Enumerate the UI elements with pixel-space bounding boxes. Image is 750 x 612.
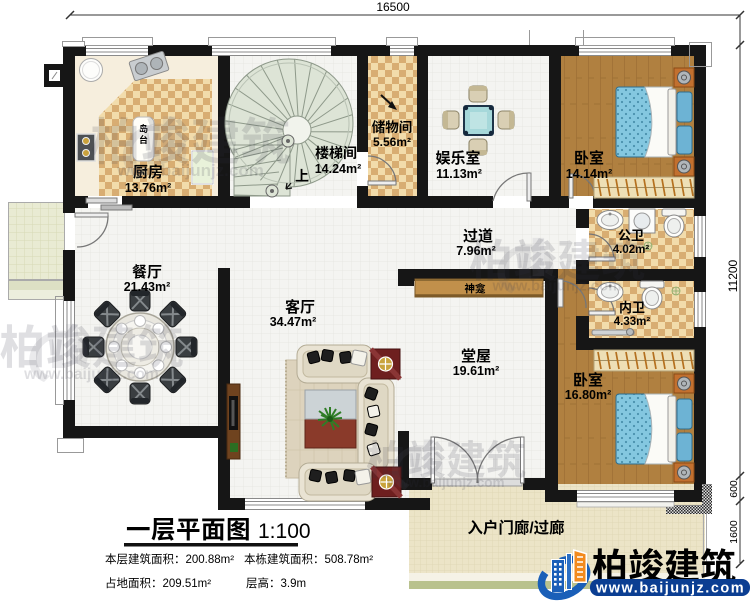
svg-text:娱乐室: 娱乐室	[435, 147, 480, 168]
svg-text:600: 600	[728, 480, 740, 498]
svg-text:14.24m²: 14.24m²	[315, 162, 362, 176]
svg-text:堂屋: 堂屋	[461, 345, 491, 366]
svg-text:1:100: 1:100	[258, 520, 311, 543]
svg-text:16500: 16500	[376, 0, 410, 14]
svg-text:19.61m²: 19.61m²	[453, 364, 500, 378]
svg-text:21.43m²: 21.43m²	[124, 280, 171, 294]
svg-text:www.baijunjz.com: www.baijunjz.com	[491, 277, 621, 294]
svg-text:5.56m²: 5.56m²	[373, 135, 411, 149]
svg-text:上: 上	[295, 166, 309, 186]
svg-text:本栋建筑面积：508.78m²: 本栋建筑面积：508.78m²	[244, 551, 373, 567]
svg-text:www.baijunjz.com: www.baijunjz.com	[116, 161, 264, 180]
svg-text:11200: 11200	[726, 259, 740, 292]
svg-text:4.33m²: 4.33m²	[614, 316, 651, 328]
svg-text:入户门廊/过廊: 入户门廊/过廊	[467, 516, 564, 538]
svg-text:占地面积：209.51m²: 占地面积：209.51m²	[105, 575, 211, 591]
svg-text:11.13m²: 11.13m²	[436, 167, 482, 181]
svg-text:楼梯间: 楼梯间	[315, 143, 357, 163]
svg-text:www.baijunjz.com: www.baijunjz.com	[386, 475, 504, 490]
svg-text:卧室: 卧室	[573, 369, 603, 390]
svg-text:14.14m²: 14.14m²	[566, 167, 613, 181]
svg-text:内卫: 内卫	[619, 297, 645, 316]
svg-text:16.80m²: 16.80m²	[565, 388, 612, 402]
svg-text:一层平面图: 一层平面图	[126, 511, 251, 546]
svg-text:卧室: 卧室	[574, 147, 604, 168]
svg-text:本层建筑面积：200.88m²: 本层建筑面积：200.88m²	[105, 551, 234, 567]
svg-text:餐厅: 餐厅	[132, 261, 162, 282]
svg-text:客厅: 客厅	[285, 296, 315, 317]
svg-text:www.baijunjz.com: www.baijunjz.com	[595, 581, 745, 597]
svg-text:层高：3.9m: 层高：3.9m	[246, 575, 306, 591]
svg-text:13.76m²: 13.76m²	[125, 181, 172, 195]
svg-text:储物间: 储物间	[372, 116, 413, 136]
svg-text:34.47m²: 34.47m²	[270, 315, 317, 329]
svg-text:www.baijunjz.com: www.baijunjz.com	[23, 366, 159, 383]
